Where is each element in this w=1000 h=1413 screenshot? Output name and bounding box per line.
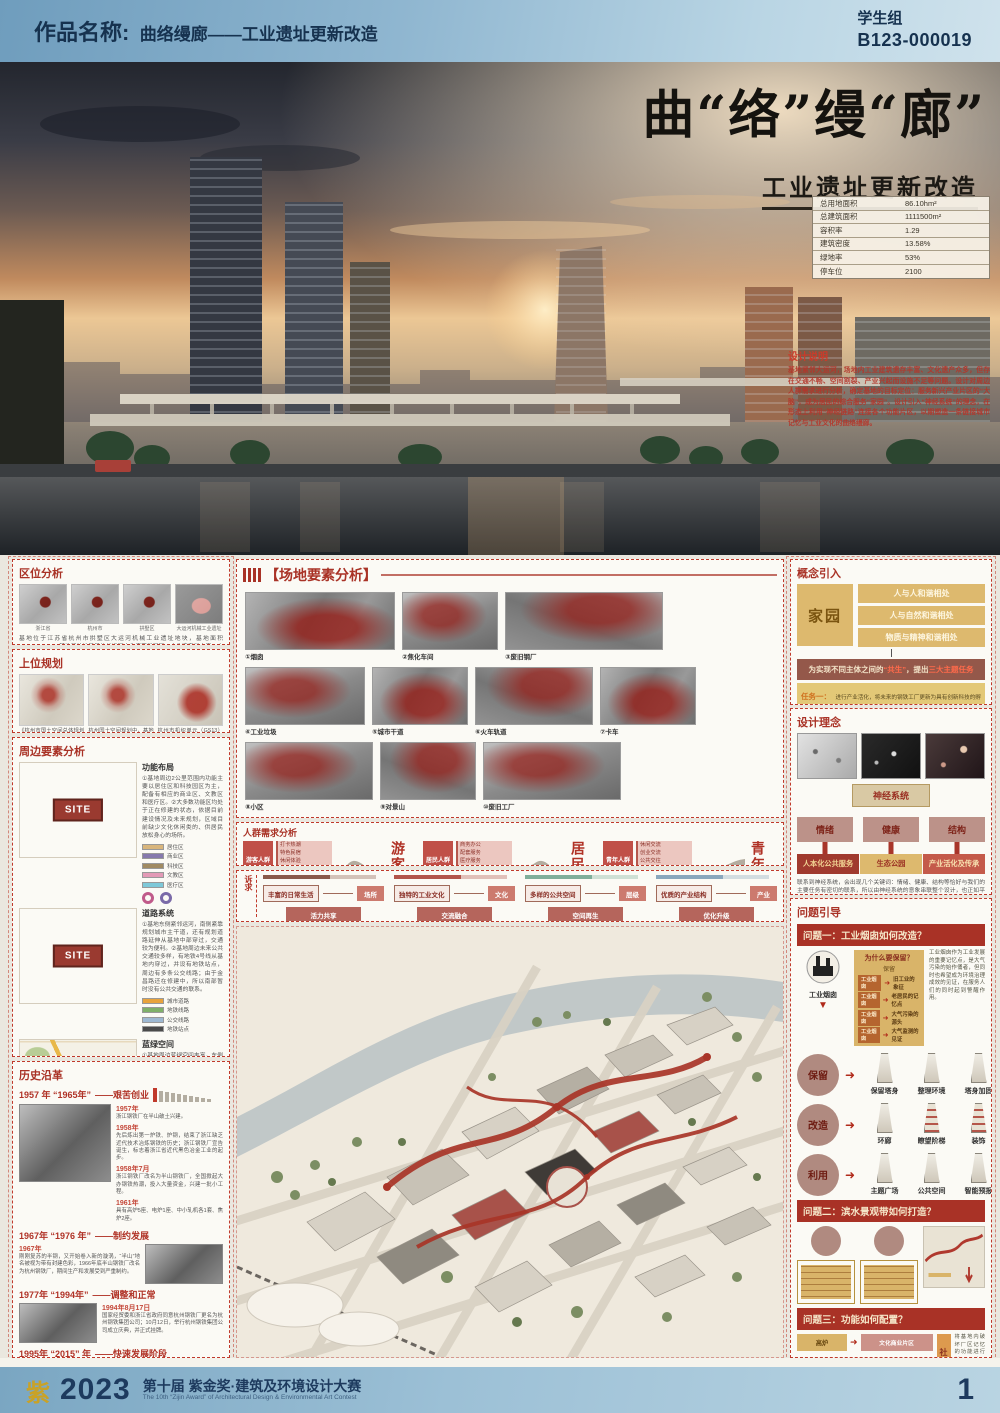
blue-green-row: SITE 蓝绿空间 ①基地周边蓝绿空间丰富，东侧紧邻杭州半山国家森林公园，西侧有… (19, 1039, 223, 1057)
work-title-text: 曲络缦廊——工业遗址更新改造 (140, 25, 378, 44)
site-photo (505, 592, 663, 650)
history-title: 历史沿革 (19, 1067, 223, 1083)
demand-goal: 独特的工业文化 文化 交流融合 (394, 875, 515, 917)
why-row-subject: 工业烟囱 (858, 992, 880, 1008)
why-row-subject: 工业烟囱 (858, 1027, 880, 1043)
masterplan-drawing (237, 927, 783, 1357)
footer-title: 第十届 紫金奖·建筑及环境设计大赛 (143, 1378, 362, 1394)
triad-boxes: 情绪健康结构 (797, 817, 985, 842)
map-thumbnail (19, 584, 67, 624)
triad-box: 结构 (929, 817, 985, 842)
crowd-panel-tourist: 游客人群 打卡热潮特色民宿休闲体验工业文化生态体验 游客 (243, 841, 417, 866)
why-row-meaning: 大气监测的见证 (892, 1027, 920, 1043)
mini-bar-chart (153, 1087, 211, 1102)
event-date: 1957年 (116, 1104, 223, 1114)
chimney-ring-icon (877, 1103, 893, 1133)
arrow-icon: ➜ (850, 1337, 858, 1348)
demand-goal-list: 丰富的日常生活 场所 活力共享 独特的工业文化 文化 交流融合 (263, 875, 777, 917)
crowd-demand-title: 人群需求分析 (243, 826, 777, 839)
phase-events: 1957年 浙江钢铁厂在半山破土兴建。 1958年 先后炼出第一炉铁、炉钢，结束… (116, 1104, 223, 1225)
triad-box: 健康 (863, 817, 919, 842)
blue-green-text: 蓝绿空间 ①基地周边蓝绿空间丰富，东侧紧邻杭州半山国家森林公园，西侧有康桥花海和… (142, 1039, 223, 1057)
site-photo (600, 667, 696, 725)
location-analysis-title: 区位分析 (19, 565, 223, 581)
goal-need: 独特的工业文化 (394, 885, 450, 902)
site-photo (245, 742, 373, 800)
demand-curve-chart (335, 856, 385, 866)
stat-value: 86.10hm² (905, 199, 937, 208)
history-photo (19, 1303, 97, 1343)
legend-swatch (142, 998, 164, 1004)
phase-name: ——快速发展阶段 (95, 1347, 167, 1358)
site-photo (402, 592, 498, 650)
history-phase-1: 1957 年 “1965年” ——艰苦创业 1957年 浙江钢铁厂在半山破土兴建… (19, 1087, 223, 1225)
function-layout-row: SITE 功能布局 ①基地周边2公里范围内功能主要以居住区和科技园区为主，配备有… (19, 762, 223, 904)
event-date: 1958年7月 (116, 1164, 223, 1174)
option-label: 环廊 (861, 1136, 908, 1146)
site-photo-tile: ⑥火车轨道 (475, 667, 593, 736)
site-photo-tile: ⑪老旧民房 (245, 817, 393, 818)
strategy-option: 保留塔身 (861, 1053, 908, 1096)
site-photo-label: ①烟囱 (245, 651, 395, 661)
crowd-tag: 青年人群 (603, 841, 633, 866)
design-notes: 设计说明 基地紧邻大运河，场地内工业建筑遗存丰富、文化遗产众多，但存在交通不畅、… (788, 348, 990, 429)
neuron-image (925, 733, 985, 779)
event-text: 刚刚复苏的半钢，又开始卷入新的漩涡，“半山”地名被视为带有封建色彩，1966年底… (19, 1254, 140, 1276)
arrow-icon: ➜ (884, 979, 890, 987)
site-photo (245, 667, 365, 725)
event-date: 1961年 (116, 1198, 223, 1208)
statement-text: 为实现不同主体之间的 (809, 665, 884, 674)
legend-label: 居住区 (167, 843, 184, 851)
map-caption: 杭州市 (71, 625, 119, 632)
crowd-big-label: 居民 (568, 841, 588, 866)
phase-years: 1967年 “1976 年” (19, 1229, 91, 1242)
goal-connector (454, 893, 485, 894)
arrow-icon: ➜ (883, 996, 889, 1004)
section-site-elements: 【场地要素分析】 ①烟囱 ②焦化车间 ③废旧钢厂 ④工业垃圾 ⑤城市干道 (236, 559, 784, 818)
hero-render: 曲“络”缦“廊” 工业遗址更新改造 总用地面积 86.10hm² 总建筑面积 1… (0, 62, 1000, 555)
legend-row: 地铁站点 (142, 1025, 223, 1033)
need-item: 配套服务 (456, 849, 512, 857)
phase-name: ——制约发展 (95, 1229, 149, 1242)
option-label: 整理环境 (908, 1086, 955, 1096)
strategy-option: 主题广场 (861, 1153, 908, 1196)
strategy-option: 环廊 (861, 1103, 908, 1146)
event-date: 1967年 (19, 1244, 140, 1254)
function-layout-map: SITE (19, 762, 137, 858)
arrow-icon: ➜ (845, 1068, 855, 1082)
question3-mapping: 高炉 ➜ 文化商业片区 焦化车间 ➜ 艺术家工作坊 传统厂房 ➜ 居民智能活动中… (797, 1334, 985, 1358)
strategy-option: 智能预报 (955, 1153, 992, 1196)
site-photo (475, 667, 593, 725)
map-thumbnail (71, 584, 119, 624)
problem-guide-title: 问题引导 (797, 904, 985, 920)
site-photo-label: ④工业垃圾 (245, 726, 365, 736)
site-photo (483, 742, 621, 800)
phase-name: ——艰苦创业 (95, 1088, 149, 1101)
legend-label: 公交线路 (167, 1016, 189, 1024)
event-text: 国家经贸委和浙江省政府同意杭州钢铁厂更名为杭州钢铁集团公司；10月12日，举行杭… (102, 1313, 223, 1335)
legend-row: 商业区 (142, 852, 223, 860)
goal-action: 交流融合 (417, 907, 492, 922)
site-photo (245, 592, 395, 650)
task-heading: 任务一： (801, 692, 831, 701)
question1-banner: 问题一：工业烟囱如何改造？ (797, 924, 985, 946)
design-concept-title: 设计理念 (797, 714, 985, 730)
history-event: 1958年 先后炼出第一炉铁、炉钢，结束了浙江缺乏近代技术冶炼钢铁的历史；浙江钢… (116, 1123, 223, 1162)
mapping-source: 高炉 (797, 1334, 847, 1351)
site-photo-tile: ④工业垃圾 (245, 667, 365, 736)
question2-diagram (797, 1226, 985, 1304)
page-number: 1 (957, 1373, 974, 1407)
need-item: 商务办公 (456, 841, 512, 849)
entry-info: 学生组 B123-000019 (857, 10, 972, 51)
location-map: 大运河机械工业遗址 (175, 584, 223, 632)
legend-swatch (142, 882, 164, 888)
strategy-keep: 保留 ➜ 保留塔身 整理环境 塔身加固 (797, 1053, 985, 1096)
legend-row: 城市道路 (142, 997, 223, 1005)
chimney-deco-icon (971, 1103, 987, 1133)
harmony-bar: 物质与精神和谐相处 (858, 628, 985, 647)
legend-swatch (142, 1026, 164, 1032)
arrow-icon: ➜ (845, 1118, 855, 1132)
goal-connector (323, 893, 354, 894)
mapping-row: 高炉 ➜ 文化商业片区 (797, 1334, 933, 1351)
donut-icon (142, 892, 154, 904)
upper-planning-item: 杭州国土空间规划中，基地紧邻半山战略节点，定位未来科技文化特区，主要布局未来产业… (88, 674, 153, 733)
map-thumbnail (123, 584, 171, 624)
location-map: 浙江省 (19, 584, 67, 632)
planning-caption: 《杭州市国土空间总体规划发展战略》提出构建“一主四片三副城”的开放发展格局，其中… (19, 728, 84, 733)
question3-banner: 问题三：功能如何配置？ (797, 1308, 985, 1330)
strategy-option: 瞭望阶梯 (908, 1103, 955, 1146)
stat-value: 1.29 (905, 226, 920, 235)
phase-events: 1994年8月17日 国家经贸委和浙江省政府同意杭州钢铁厂更名为杭州钢铁集团公司… (102, 1303, 223, 1343)
question1-why-row: 工业烟囱 ▼ 为什么要保留？ 保留 工业烟囱 ➜ 旧工业的象征 工业烟囱 ➜ 老… (797, 950, 985, 1046)
demand-goal: 多样的公共空间 层级 空间再生 (525, 875, 646, 917)
crowd-demand-panels: 游客人群 打卡热潮特色民宿休闲体验工业文化生态体验 游客 居民人群 商务办公配套… (243, 841, 777, 866)
neuron-image (797, 733, 857, 779)
site-photo-label: ⑥火车轨道 (475, 726, 593, 736)
goal-action: 优化升级 (679, 907, 754, 922)
fifteen-minute-circle-box: 社区十五分钟步行生活圈 (937, 1334, 951, 1358)
site-photo-label: ⑨对景山 (380, 801, 476, 811)
task-block: 任务一： 进行产业活化，将未来的钢铁工厂更新为具有创新科技的孵化基地和创新人才的… (797, 683, 985, 705)
why-row-meaning: 旧工业的象征 (893, 975, 920, 991)
header-bar: 作品名称: 曲络缦廊——工业遗址更新改造 学生组 B123-000019 (0, 0, 1000, 62)
arrow-icon: ➜ (883, 1031, 889, 1039)
stat-row: 建筑密度 13.58% (813, 238, 989, 252)
mapped-box-park: 生态公园 (860, 854, 922, 874)
legend-label: 科技区 (167, 862, 184, 870)
work-title-label: 作品名称: (34, 20, 129, 45)
phase-years: 1977年 “1994年” (19, 1288, 89, 1301)
event-text: 浙江钢铁厂在半山破土兴建。 (116, 1114, 223, 1121)
why-row-subject: 工业烟囱 (858, 1010, 880, 1026)
stripes-icon (243, 568, 261, 582)
footer-year: 2023 (60, 1373, 131, 1407)
task-list: 任务一： 进行产业活化，将未来的钢铁工厂更新为具有创新科技的孵化基地和创新人才的… (797, 683, 985, 705)
upper-planning-title: 上位规划 (19, 655, 223, 671)
project-stats-table: 总用地面积 86.10hm² 总建筑面积 1111500m² 容积率 1.29 … (812, 196, 990, 279)
strategy-circle: 利用 (797, 1154, 839, 1196)
work-title: 作品名称: 曲络缦廊——工业遗址更新改造 (34, 15, 378, 47)
legend-label: 城市道路 (167, 997, 189, 1005)
design-notes-title: 设计说明 (788, 348, 990, 363)
down-arrow-icon: ▼ (797, 1000, 849, 1011)
stat-label: 停车位 (813, 266, 905, 277)
project-title-calligraphy: 曲“络”缦“廊” (566, 90, 986, 142)
crowd-needs: 打卡热潮特色民宿休闲体验工业文化生态体验 (276, 841, 332, 866)
harmony-bar: 人与人和谐相处 (858, 584, 985, 603)
need-item: 特色民宿 (276, 849, 332, 857)
function-layout-text: 功能布局 ①基地周边2公里范围内功能主要以居住区和科技园区为主，配备有相应的商业… (142, 762, 223, 904)
function-layout-paragraph: ①基地周边2公里范围内功能主要以居住区和科技园区为主，配备有相应的商业区、文教区… (142, 775, 223, 840)
why-row: 工业烟囱 ➜ 大气监测的见证 (858, 1027, 920, 1043)
why-row: 工业烟囱 ➜ 老居民的记忆点 (858, 992, 920, 1008)
planning-caption: 杭州市机织单元（GS13）控制性详细规划明确，基地所在区域内规划用地性质以工业用… (158, 728, 223, 733)
site-photo-tile: ⑦卡车 (600, 667, 696, 736)
location-map: 拱墅区 (123, 584, 171, 632)
section-concept-intro: 概念引入 家园 人与人和谐相处人与自然和谐相处物质与精神和谐相处 为实现不同主体… (790, 559, 992, 705)
goal-need: 优质的产业结构 (656, 885, 712, 902)
why-row-subject: 工业烟囱 (858, 975, 881, 991)
footer-gap (0, 1358, 1000, 1367)
site-photo-tile: ⑤城市干道 (372, 667, 468, 736)
goal-color-bar (525, 875, 592, 879)
stat-row: 停车位 2100 (813, 265, 989, 279)
event-text: 浙江钢铁厂改名为半山钢铁厂，全国掀起大办钢铁热潮，投入大量资金，兴建一批小工程。 (116, 1174, 223, 1196)
waterfront-node-icon (811, 1226, 841, 1256)
connector-line (891, 649, 892, 657)
goal-color-bar (656, 875, 723, 879)
waterfront-note-box (860, 1260, 918, 1304)
legend-row: 公交线路 (142, 1016, 223, 1024)
triad-box: 情绪 (797, 817, 853, 842)
history-event: 1967年 刚刚复苏的半钢，又开始卷入新的漩涡，“半山”地名被视为带有封建色彩，… (19, 1244, 140, 1276)
site-photo-label: ⑩废旧工厂 (483, 801, 621, 811)
concept-statement: 为实现不同主体之间的“共生”，提出三大主题任务 (797, 659, 985, 680)
crowd-panel-youth: 青年人群 休闲交流创业交流公共交往商务办公休闲娱乐 青年 (603, 841, 777, 866)
event-date: 1994年8月17日 (102, 1303, 223, 1313)
legend-label: 医疗区 (167, 881, 184, 889)
chimney-stairs-icon (924, 1103, 940, 1133)
option-label: 保留塔身 (861, 1086, 908, 1096)
nervous-system-box: 神经系统 (852, 784, 930, 807)
planning-caption: 杭州国土空间规划中，基地紧邻半山战略节点，定位未来科技文化特区，主要布局未来产业… (88, 728, 153, 733)
legend-row: 居住区 (142, 843, 223, 851)
demand-curve-chart (515, 856, 565, 866)
why-row-meaning: 老居民的记忆点 (892, 992, 920, 1008)
footer-bar: 紫 2023 第十届 紫金奖·建筑及环境设计大赛 The 10th “Zijin… (0, 1367, 1000, 1413)
stat-value: 1111500m² (905, 212, 941, 221)
legend-label: 文教区 (167, 871, 184, 879)
upper-planning-item: 杭州市机织单元（GS13）控制性详细规划明确，基地所在区域内规划用地性质以工业用… (158, 674, 223, 733)
waterfront-plan-sketch (923, 1226, 985, 1288)
section-history: 历史沿革 1957 年 “1965年” ——艰苦创业 1957年 (12, 1061, 230, 1358)
neuron-images (797, 733, 985, 779)
crowd-tag: 游客人群 (243, 841, 273, 866)
road-system-row: SITE 道路系统 ①基地东侧紧邻运河，南侧紧靠规划城市主干道，还有规划道路延伸… (19, 908, 223, 1035)
stat-label: 绿地率 (813, 252, 905, 263)
strategy-option: 塔身加固 (955, 1053, 992, 1096)
arrow-icon: ➜ (883, 1014, 889, 1022)
fifteen-minute-label: 社区十五分钟步行生活圈 (938, 1348, 949, 1358)
location-map: 杭州市 (71, 584, 119, 632)
strategy-option: 装饰 (955, 1103, 992, 1146)
phase-years: 1957 年 “1965年” (19, 1088, 91, 1101)
option-label: 主题广场 (861, 1186, 908, 1196)
site-photo-tile: ⑫废旧公园 (400, 817, 496, 818)
design-concept-text: 联系到神经系统，会出现几个关键词：情绪、健康、结构等恰好与我们的主要任务有密切的… (797, 879, 985, 895)
harmony-bar: 人与自然和谐相处 (858, 606, 985, 625)
chimney-plaza-icon (924, 1153, 940, 1183)
map-thumbnail (175, 584, 223, 624)
waterfront-node-icon (874, 1226, 904, 1256)
event-date: 1958年 (116, 1123, 223, 1133)
zijin-logo: 紫 (26, 1373, 50, 1408)
goal-tag: 产业 (750, 886, 777, 901)
site-photo (400, 817, 496, 818)
section-design-concept: 设计理念 神经系统 情绪健康结构 人本化公共服务 生态公园 产业活化及传承 联系… (790, 708, 992, 895)
why-row-meaning: 大气污染的源头 (892, 1010, 920, 1026)
site-elements-title: 【场地要素分析】 (265, 565, 377, 585)
option-label: 塔身加固 (955, 1086, 992, 1096)
crowd-needs: 商务办公配套服务医疗服务智慧生活文化生活 (456, 841, 512, 866)
goal-tag: 文化 (488, 886, 515, 901)
legend-swatch (142, 1007, 164, 1013)
mapped-box-service: 人本化公共服务 (797, 854, 859, 874)
waterfront-note-box (797, 1260, 855, 1304)
section-crowd-demand: 人群需求分析 游客人群 打卡热潮特色民宿休闲体验工业文化生态体验 游客 居民人群… (236, 822, 784, 866)
need-item: 创业交流 (636, 849, 692, 857)
history-event: 1958年7月 浙江钢铁厂改名为半山钢铁厂，全国掀起大办钢铁热潮，投入大量资金，… (116, 1164, 223, 1196)
site-photo-label: ⑦卡车 (600, 726, 696, 736)
section-problem-guide: 问题引导 问题一：工业烟囱如何改造？ 工业烟囱 ▼ 为什么要保留？ 保留 工业烟… (790, 898, 992, 1358)
site-photo-label: ③废旧钢厂 (505, 651, 663, 661)
road-legend: 城市道路 地铁线路 公交线路 地铁站点 (142, 997, 223, 1034)
demand-side-label: 诉求 (243, 875, 257, 917)
location-maps: 浙江省 杭州市 拱墅区 大运河机械工业遗址 (19, 584, 223, 632)
statement-highlight: 三大主题任务 (929, 665, 974, 674)
history-photo (19, 1104, 111, 1182)
phase-years: 1995年 “2015” 年 (19, 1347, 91, 1358)
crowd-panel-resident: 居民人群 商务办公配套服务医疗服务智慧生活文化生活 居民 (423, 841, 597, 866)
statement-text: ，提出 (906, 665, 929, 674)
why-keep-box: 为什么要保留？ 保留 工业烟囱 ➜ 旧工业的象征 工业烟囱 ➜ 老居民的记忆点 … (854, 950, 924, 1046)
legend-row: 医疗区 (142, 881, 223, 889)
planning-map-thumbnail (158, 674, 223, 726)
goal-need: 多样的公共空间 (525, 885, 581, 902)
question2-banner: 问题二：滨水景观带如何打造？ (797, 1200, 985, 1222)
concept-intro-title: 概念引入 (797, 565, 985, 581)
crowd-big-label: 游客 (388, 841, 408, 866)
map-caption: 大运河机械工业遗址 (175, 625, 223, 632)
legend-row: 地铁线路 (142, 1006, 223, 1014)
competition-board: 作品名称: 曲络缦廊——工业遗址更新改造 学生组 B123-000019 (0, 0, 1000, 1413)
site-photo-tile: ⑧小区 (245, 742, 373, 811)
mapped-boxes: 人本化公共服务 生态公园 产业活化及传承 (797, 854, 985, 874)
upper-planning-maps: 《杭州市国土空间总体规划发展战略》提出构建“一主四片三副城”的开放发展格局，其中… (19, 674, 223, 733)
chimney-plaza-icon (877, 1153, 893, 1183)
section-upper-planning: 上位规划 《杭州市国土空间总体规划发展战略》提出构建“一主四片三副城”的开放发展… (12, 649, 230, 733)
site-photo (245, 817, 393, 818)
mapped-box-industry: 产业活化及传承 (923, 854, 985, 874)
event-text: 先后炼出第一炉铁、炉钢，结束了浙江缺乏近代技术冶炼钢铁的历史；浙江钢铁厂宣告诞生… (116, 1133, 223, 1162)
demand-goal: 丰富的日常生活 场所 活力共享 (263, 875, 384, 917)
section-surrounding-elements: 周边要素分析 SITE 功能布局 ①基地周边2公里范围内功能主要以居住区和科技园… (12, 737, 230, 1057)
need-item: 休闲交流 (636, 841, 692, 849)
stat-label: 容积率 (813, 225, 905, 236)
phase-events: 1967年 刚刚复苏的半钢，又开始卷入新的漩涡，“半山”地名被视为带有封建色彩，… (19, 1244, 140, 1284)
event-text: 具有高炉5座、电炉1座、中小轧机各1套、焦炉2座。 (116, 1208, 223, 1223)
arrow-icon: ➜ (845, 1168, 855, 1182)
factory-icon-label: 工业烟囱 (797, 990, 849, 1000)
location-analysis-text: 基地位于江苏省杭州市拱墅区大运河机械工业遗址地块，基地面积861013.14m²… (19, 635, 223, 645)
strategy-circle: 保留 (797, 1054, 839, 1096)
legend-swatch (142, 863, 164, 869)
strategy-utilize: 利用 ➜ 主题广场 公共空间 智能预报 (797, 1153, 985, 1196)
factory-icon (803, 950, 843, 984)
chimney-icon (924, 1053, 940, 1083)
history-photo (145, 1244, 223, 1284)
history-event: 1961年 具有高炉5座、电炉1座、中小轧机各1套、焦炉2座。 (116, 1198, 223, 1223)
chimney-icon (971, 1053, 987, 1083)
site-photo (372, 667, 468, 725)
demand-curve-chart (695, 856, 745, 866)
question3-side-note: 将基地内破坏厂区记忆的功能进行纠正，对于闲置的厂房进行功能植入，在保留厂区记忆的… (955, 1334, 985, 1358)
option-label: 瞭望阶梯 (908, 1136, 955, 1146)
site-photo-tile: ②焦化车间 (402, 592, 498, 661)
legend-label: 地铁线路 (167, 1006, 189, 1014)
strategy-option: 整理环境 (908, 1053, 955, 1096)
site-photo-label: ②焦化车间 (402, 651, 498, 661)
need-item: 打卡热潮 (276, 841, 332, 849)
map-caption: 拱墅区 (123, 625, 171, 632)
demand-goal: 优质的产业结构 产业 优化升级 (656, 875, 777, 917)
blue-green-map: SITE (19, 1039, 137, 1057)
donut-icon (160, 892, 172, 904)
question1-side-note: 工业烟囱作为工业发展的重要记忆点，是大气污染的始作俑者，但同时也希望成为环境治理… (929, 950, 985, 1046)
stat-row: 总用地面积 86.10hm² (813, 197, 989, 211)
strategy-circle: 改造 (797, 1104, 839, 1146)
blue-green-heading: 蓝绿空间 (142, 1039, 223, 1050)
need-item: 休闲体验 (276, 857, 332, 865)
phase-name: ——调整和正常 (93, 1288, 156, 1301)
masterplan-axonometric (236, 926, 784, 1358)
goal-action: 活力共享 (286, 907, 361, 922)
option-label: 智能预报 (955, 1186, 992, 1196)
road-system-map: SITE (19, 908, 137, 1004)
why-rows: 工业烟囱 ➜ 旧工业的象征 工业烟囱 ➜ 老居民的记忆点 工业烟囱 ➜ 大气污染… (858, 975, 920, 1044)
waterfront-curve (924, 1227, 984, 1287)
planning-map-thumbnail (88, 674, 153, 726)
title-rule (381, 574, 777, 576)
goal-connector (716, 893, 747, 894)
option-label: 装饰 (955, 1136, 992, 1146)
stat-label: 建筑密度 (813, 238, 905, 249)
legend-swatch (142, 844, 164, 850)
road-system-text: 道路系统 ①基地东侧紧邻运河，南侧紧靠规划城市主干道，还有规划道路延伸从基地中部… (142, 908, 223, 1035)
why-subtitle: 保留 (858, 964, 920, 973)
history-phase-3: 1977年 “1994年” ——调整和正常 1994年8月17日 国家经贸委和浙… (19, 1288, 223, 1343)
crowd-big-label: 青年 (748, 841, 768, 866)
legend-swatch (142, 1017, 164, 1023)
goal-tag: 场所 (357, 886, 384, 901)
crowd-needs: 休闲交流创业交流公共交往商务办公休闲娱乐 (636, 841, 692, 866)
stat-value: 13.58% (905, 239, 930, 248)
